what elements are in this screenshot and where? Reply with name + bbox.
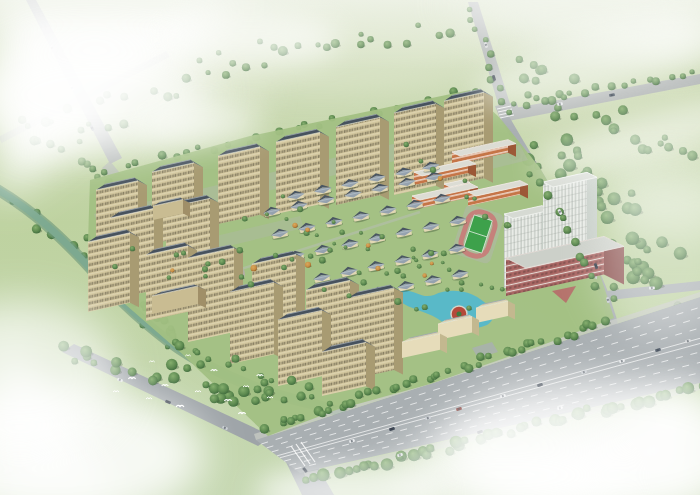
tower-building	[88, 230, 139, 312]
tower-building	[230, 279, 283, 364]
cloud	[160, 10, 340, 70]
aerial-rendering-stage	[0, 0, 700, 495]
pool-plaza-green	[457, 312, 462, 317]
cloud	[140, 105, 260, 145]
tower-building	[218, 144, 269, 224]
masterplan-scene	[0, 0, 700, 495]
